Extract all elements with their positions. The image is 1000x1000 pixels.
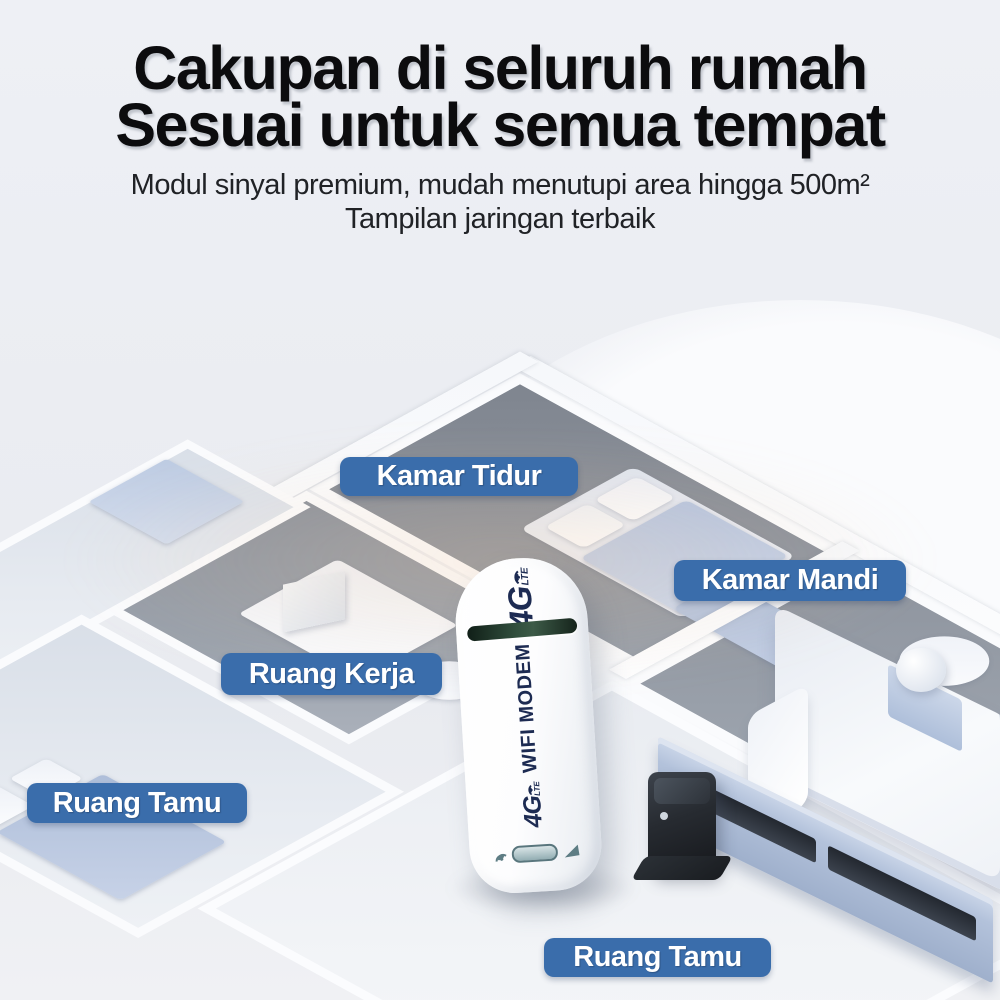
- wifi-indicator-icon: [490, 846, 510, 865]
- room-label-kamar-mandi: Kamar Mandi: [674, 560, 906, 601]
- title-line-1: Cakupan di seluruh rumah: [0, 40, 1000, 97]
- signal-triangle-icon: [562, 843, 581, 859]
- room-label-text: Ruang Kerja: [249, 658, 414, 691]
- room-label-text: Kamar Tidur: [377, 460, 542, 493]
- room-label-text: Kamar Mandi: [702, 564, 879, 597]
- device-indicators: [469, 841, 602, 866]
- device-body-text: 4G LTE WIFI MODEM: [457, 640, 600, 830]
- room-label-text: Ruang Tamu: [53, 787, 221, 820]
- header: Cakupan di seluruh rumah Sesuai untuk se…: [0, 40, 1000, 236]
- room-label-ruang-tamu-bottom: Ruang Tamu: [544, 938, 771, 977]
- body-lte-text: LTE: [531, 781, 541, 796]
- wifi-arcs-icon: [507, 568, 520, 587]
- title-line-2: Sesuai untuk semua tempat: [0, 97, 1000, 154]
- room-label-text: Ruang Tamu: [573, 941, 741, 974]
- body-modem-text: WIFI MODEM: [512, 642, 543, 773]
- room-label-kamar-tidur: Kamar Tidur: [340, 457, 578, 496]
- vacuum-led: [660, 812, 668, 820]
- robot-vacuum: [648, 772, 716, 872]
- room-label-ruang-tamu-left: Ruang Tamu: [27, 783, 247, 823]
- room-label-ruang-kerja: Ruang Kerja: [221, 653, 442, 695]
- led-indicator: [511, 843, 558, 863]
- body-4g-text: 4G: [518, 795, 549, 828]
- speaker-dome: [896, 648, 946, 692]
- logo-lte-text: LTE: [519, 567, 531, 586]
- subtitle: Modul sinyal premium, mudah menutupi are…: [0, 168, 1000, 236]
- product-banner: Cakupan di seluruh rumah Sesuai untuk se…: [0, 0, 1000, 1000]
- wifi-modem-device: 4G LTE 4G LTE: [452, 554, 604, 895]
- subtitle-line-2: Tampilan jaringan terbaik: [0, 202, 1000, 236]
- subtitle-line-1: Modul sinyal premium, mudah menutupi are…: [0, 168, 1000, 202]
